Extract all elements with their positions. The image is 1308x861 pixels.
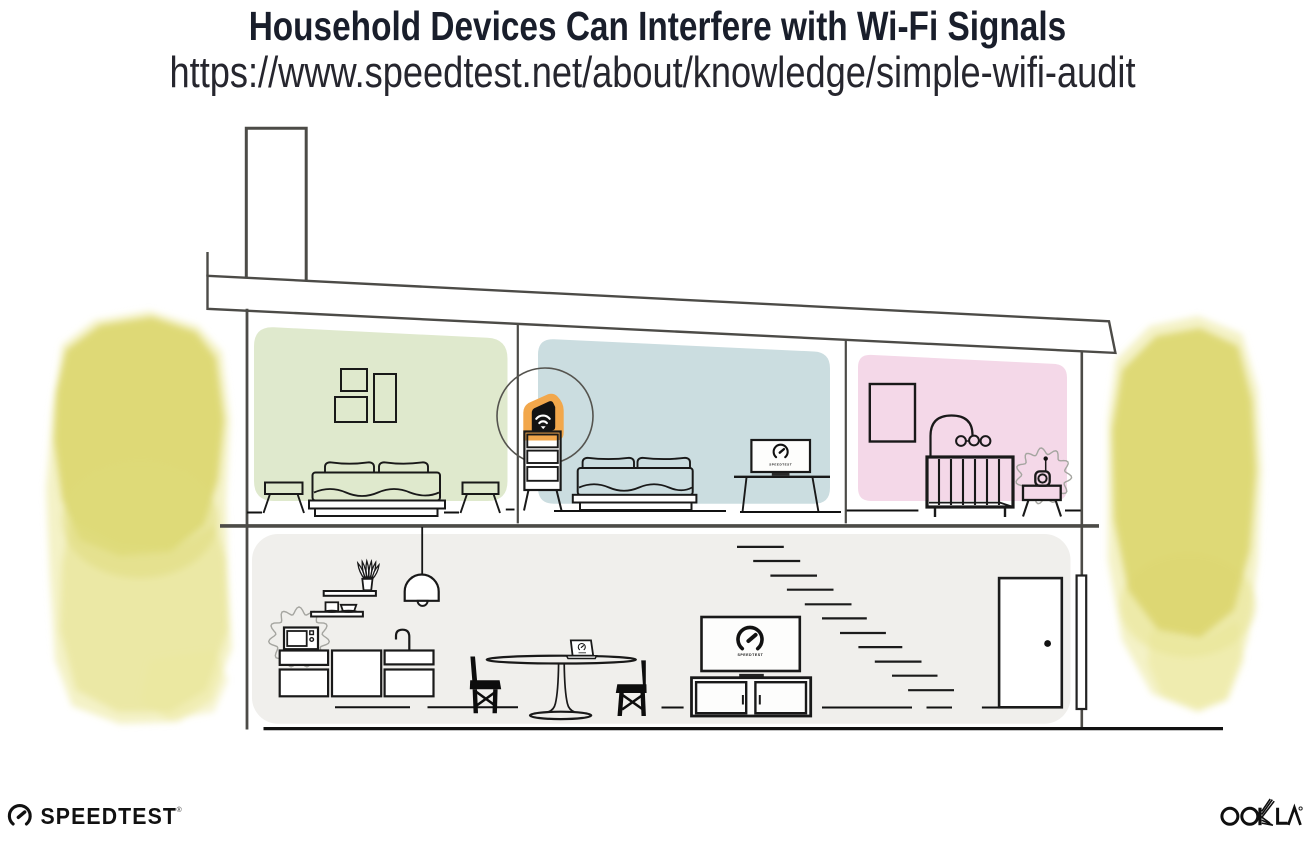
svg-text:SPEEDTEST: SPEEDTEST <box>769 463 792 467</box>
svg-text:Household Devices Can Interfer: Household Devices Can Interfere with Wi-… <box>249 3 1066 49</box>
svg-text:SPEEDTEST: SPEEDTEST <box>41 803 178 829</box>
svg-text:®: ® <box>177 806 183 814</box>
svg-text:https://www.speedtest.net/abou: https://www.speedtest.net/about/knowledg… <box>170 49 1136 97</box>
svg-text:SPEEDTEST: SPEEDTEST <box>737 653 763 657</box>
